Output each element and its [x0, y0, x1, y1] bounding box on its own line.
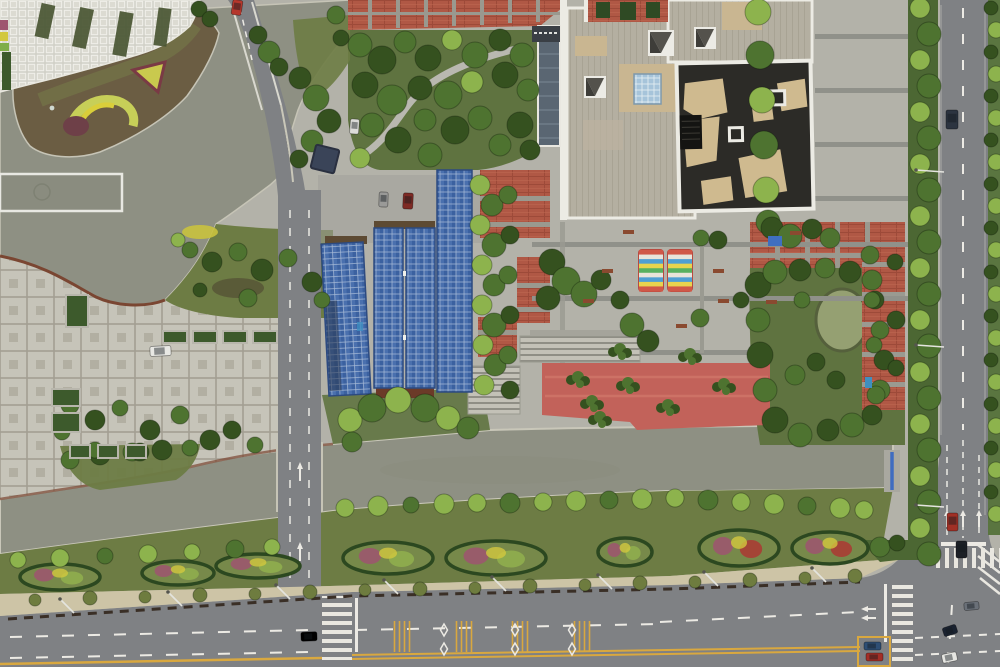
planter: [193, 331, 217, 343]
canopy-stripe: [639, 268, 663, 273]
edge-hedge: [2, 52, 11, 90]
flower-patch: [713, 537, 733, 555]
tree: [864, 292, 880, 308]
tree: [359, 584, 371, 596]
bench: [602, 269, 613, 273]
tree: [820, 228, 840, 248]
flower-patch: [607, 543, 621, 557]
flower-patch: [155, 565, 173, 577]
paving-band: [815, 196, 908, 201]
bench: [623, 230, 634, 234]
tree: [200, 430, 220, 450]
car-glass: [233, 3, 241, 11]
tree: [385, 127, 411, 153]
tree: [764, 494, 784, 514]
shrub: [598, 420, 606, 428]
tree: [789, 259, 811, 281]
planter-box: [52, 389, 80, 406]
shrub: [666, 408, 674, 416]
tree: [889, 535, 905, 551]
planter: [126, 445, 146, 458]
tree: [839, 261, 861, 283]
canopy-stripe: [668, 255, 692, 260]
tree: [520, 140, 540, 160]
tree: [97, 548, 113, 564]
rainbow-canopy: [638, 249, 664, 292]
tree: [436, 406, 460, 430]
tree: [517, 79, 539, 101]
canopy-stripe: [639, 255, 663, 260]
tree: [917, 178, 941, 202]
skylight-cube: [648, 30, 674, 56]
tree: [988, 286, 1000, 302]
tree: [182, 440, 198, 456]
tree: [270, 58, 288, 76]
tree: [536, 286, 560, 310]
streetlight-base: [58, 597, 62, 601]
tree: [290, 150, 308, 168]
planter-box: [70, 445, 90, 458]
tree: [988, 198, 1000, 214]
car: [150, 345, 171, 356]
streetlight-base: [274, 583, 278, 587]
flower-bed: [598, 538, 652, 566]
atrium-glass: [538, 26, 560, 146]
car: [964, 601, 980, 610]
streetlight-base: [914, 168, 918, 172]
tree: [139, 545, 157, 563]
flower-patch: [34, 569, 54, 582]
car: [946, 110, 958, 129]
shrub: [590, 404, 598, 412]
tree: [743, 573, 757, 587]
tree: [368, 46, 396, 74]
tree: [184, 544, 200, 560]
flower-patch: [379, 548, 397, 559]
tree: [988, 22, 1000, 38]
tree: [988, 462, 1000, 478]
tree: [492, 62, 518, 88]
flower-patch: [359, 548, 382, 564]
tree: [848, 569, 862, 583]
tree: [888, 360, 904, 376]
tree: [984, 221, 998, 235]
tree: [807, 353, 825, 371]
tree: [862, 270, 882, 290]
tree: [633, 576, 647, 590]
car: [231, 0, 243, 16]
shrub: [618, 352, 626, 360]
tree: [984, 133, 998, 147]
planter: [98, 445, 118, 458]
tree: [489, 29, 511, 51]
tree: [745, 0, 771, 25]
tree: [794, 292, 810, 308]
tree: [600, 491, 618, 509]
canopy-stripe: [639, 264, 663, 269]
pavilion-roof: [310, 144, 339, 173]
tree: [472, 295, 492, 315]
tree: [579, 579, 591, 591]
streetlight-base: [596, 573, 600, 577]
tree: [368, 496, 388, 516]
tree: [182, 242, 198, 258]
tree: [501, 381, 519, 399]
tree: [984, 441, 998, 455]
tree: [457, 417, 479, 439]
tree: [984, 89, 998, 103]
tree: [732, 493, 750, 511]
tree: [750, 131, 778, 159]
flower-bed: [216, 554, 300, 578]
planter: [52, 413, 80, 432]
tree: [887, 254, 903, 270]
planter: [52, 389, 80, 406]
tree: [442, 30, 462, 50]
car-glass: [154, 347, 165, 355]
tree: [303, 85, 329, 111]
tree: [753, 177, 779, 203]
tree: [249, 26, 267, 44]
tree: [984, 309, 998, 323]
car-glass: [351, 122, 357, 129]
tree: [917, 282, 941, 306]
tree: [984, 485, 998, 499]
flower-patch: [731, 536, 747, 549]
flower-patch: [171, 565, 185, 573]
shrub: [688, 357, 696, 365]
streetlight-base: [702, 570, 706, 574]
tree: [817, 419, 839, 441]
tree: [352, 72, 378, 98]
tree: [988, 242, 1000, 258]
streetlight-base: [914, 343, 918, 347]
shrub: [576, 380, 584, 388]
planter-box: [163, 331, 187, 343]
tree: [152, 440, 172, 460]
tree: [910, 0, 930, 18]
tree: [910, 206, 930, 226]
tree: [29, 594, 41, 606]
tree: [689, 576, 701, 588]
tree: [434, 494, 454, 514]
car: [956, 541, 967, 558]
tree: [709, 231, 727, 249]
car-glass: [948, 114, 957, 123]
car-glass: [867, 644, 876, 649]
solar-array: [437, 170, 472, 392]
tree: [827, 371, 845, 389]
paving-band: [815, 142, 908, 147]
trash-bin: [357, 322, 363, 331]
tree: [870, 537, 890, 557]
tree: [693, 230, 709, 246]
tree: [862, 405, 882, 425]
flower-patch: [805, 538, 824, 554]
tree: [223, 421, 241, 439]
streetlight-base: [490, 575, 494, 579]
tree: [917, 74, 941, 98]
tree: [472, 255, 492, 275]
tree: [462, 42, 488, 68]
tree: [747, 342, 773, 368]
tree: [333, 30, 349, 46]
tree: [264, 539, 280, 555]
tree: [988, 330, 1000, 346]
tree: [867, 386, 885, 404]
crosswalk: [322, 596, 352, 660]
car: [947, 513, 958, 531]
canopy-stripe: [668, 286, 692, 291]
tree: [637, 330, 659, 352]
tree: [910, 258, 930, 278]
flower-patch: [63, 116, 89, 136]
trash-bin: [865, 377, 872, 388]
planter-box: [66, 295, 88, 327]
flower-bed: [446, 541, 546, 575]
tree: [317, 109, 341, 133]
tree: [500, 493, 520, 513]
canopy-stripe: [668, 277, 692, 282]
edge-flower-bed: [0, 20, 8, 30]
tree: [746, 308, 770, 332]
flower-bed: [142, 561, 214, 585]
tree: [350, 148, 370, 168]
car-glass: [958, 544, 966, 552]
tree: [171, 233, 185, 247]
car: [301, 632, 317, 642]
tree: [917, 542, 941, 566]
tree: [830, 498, 850, 518]
canopy-stripe: [668, 273, 692, 278]
tree: [840, 413, 864, 437]
planter-box: [98, 445, 118, 458]
bench: [766, 300, 777, 304]
tree: [499, 266, 517, 284]
tree: [917, 126, 941, 150]
bench: [676, 324, 687, 328]
tree: [632, 489, 652, 509]
streetlight-base: [914, 503, 918, 507]
tree: [788, 423, 812, 447]
streetlight-base: [810, 566, 814, 570]
tree: [984, 265, 998, 279]
canopy-stripe: [668, 259, 692, 264]
tree: [411, 394, 439, 422]
tree: [917, 22, 941, 46]
tree: [799, 572, 811, 584]
tree: [798, 497, 816, 515]
tree: [139, 591, 151, 603]
tree: [415, 45, 441, 71]
tree: [414, 109, 436, 131]
fountain-platform: [0, 174, 122, 211]
tree: [871, 321, 889, 339]
tree: [140, 420, 160, 440]
tree: [534, 493, 552, 511]
rainbow-canopy: [667, 249, 693, 292]
tree: [855, 501, 873, 519]
tree: [984, 45, 998, 59]
streetlight-base: [166, 590, 170, 594]
car-glass: [404, 196, 411, 204]
canopy-stripe: [668, 264, 692, 269]
tree: [239, 289, 257, 307]
tree: [303, 585, 317, 599]
planter: [253, 331, 277, 343]
tree: [226, 540, 244, 558]
tree: [336, 499, 354, 517]
tree: [815, 258, 835, 278]
tree: [394, 31, 416, 53]
tree: [910, 102, 930, 122]
tree: [861, 246, 879, 264]
tree: [566, 491, 586, 511]
tree: [910, 414, 930, 434]
tree: [917, 490, 941, 514]
tree: [510, 43, 534, 67]
tree: [785, 365, 805, 385]
tree: [202, 11, 218, 27]
tree: [984, 353, 998, 367]
tree: [988, 374, 1000, 390]
tree: [753, 378, 777, 402]
planter: [223, 331, 247, 343]
paving-band: [815, 88, 908, 93]
yellow-flower-strip: [182, 225, 218, 239]
tree: [408, 76, 432, 100]
planter-box: [126, 445, 146, 458]
flower-bed: [343, 542, 433, 574]
tree: [348, 33, 372, 57]
tree: [866, 337, 882, 353]
flower-bed: [20, 564, 100, 590]
tree: [489, 134, 511, 156]
shrub: [626, 386, 634, 394]
tree: [342, 432, 362, 452]
car-glass: [869, 655, 878, 660]
tree: [377, 85, 407, 115]
tree: [988, 154, 1000, 170]
tree: [413, 582, 427, 596]
paving-band: [815, 34, 908, 39]
tree: [988, 506, 1000, 522]
bench: [713, 269, 724, 273]
skylight-cube: [694, 27, 716, 49]
tree: [434, 81, 462, 109]
car-glass: [949, 517, 957, 525]
planter: [66, 295, 88, 327]
planter-box: [52, 413, 80, 432]
tree: [83, 591, 97, 605]
tree: [385, 387, 411, 413]
tree: [763, 260, 787, 284]
planter-box: [253, 331, 277, 343]
canopy-stripe: [639, 273, 663, 278]
dark-roof-wing: [676, 61, 813, 212]
tree: [112, 400, 128, 416]
tree: [469, 582, 481, 594]
flower-patch: [822, 538, 837, 549]
tree: [193, 283, 207, 297]
car: [864, 642, 881, 650]
tree: [360, 113, 384, 137]
car-glass: [380, 195, 386, 202]
tree: [302, 272, 322, 292]
flower-patch: [620, 543, 631, 553]
canopy-stripe: [639, 259, 663, 264]
car: [349, 119, 359, 135]
canopy-stripe: [639, 277, 663, 282]
solar-array: [321, 242, 371, 396]
tree: [910, 518, 930, 538]
tree: [988, 110, 1000, 126]
tree: [279, 249, 297, 267]
tree: [473, 335, 493, 355]
flower-bed: [792, 532, 868, 564]
tree: [499, 346, 517, 364]
tree: [314, 292, 330, 308]
flower-patch: [486, 547, 506, 559]
tree: [85, 410, 105, 430]
tree: [202, 252, 222, 272]
blue-skylight: [634, 74, 661, 104]
car: [866, 653, 883, 661]
bench: [718, 299, 729, 303]
tree: [499, 186, 517, 204]
tree: [746, 41, 774, 69]
flower-patch: [231, 558, 252, 570]
bench: [790, 231, 801, 235]
plaza-band-vertical: [700, 240, 704, 353]
flower-patch: [464, 548, 489, 565]
tree: [249, 588, 261, 600]
tree: [749, 87, 775, 113]
tree: [523, 579, 537, 593]
tree: [474, 375, 494, 395]
tree: [193, 588, 207, 602]
tree: [691, 309, 709, 327]
car-glass: [304, 633, 312, 639]
tree: [988, 66, 1000, 82]
canopy-stripe: [668, 268, 692, 273]
tree: [733, 292, 749, 308]
tree: [910, 310, 930, 330]
aerial-photo: [0, 0, 1000, 667]
tree: [470, 175, 490, 195]
tree: [501, 226, 519, 244]
skylight-cube: [584, 76, 606, 98]
car: [403, 193, 414, 210]
canopy-stripe: [639, 250, 663, 255]
tree: [10, 552, 26, 568]
tree: [501, 306, 519, 324]
planter: [163, 331, 187, 343]
tree: [984, 1, 998, 15]
crosswalk: [892, 582, 913, 664]
tree: [461, 71, 483, 93]
tree: [984, 177, 998, 191]
canopy-stripe: [639, 282, 663, 287]
tree: [698, 490, 718, 510]
tree: [327, 6, 345, 24]
canopy-stripe: [639, 286, 663, 291]
tree: [358, 394, 386, 422]
bench: [583, 299, 594, 303]
tree: [917, 386, 941, 410]
tree: [984, 397, 998, 411]
flower-bed: [699, 530, 779, 566]
